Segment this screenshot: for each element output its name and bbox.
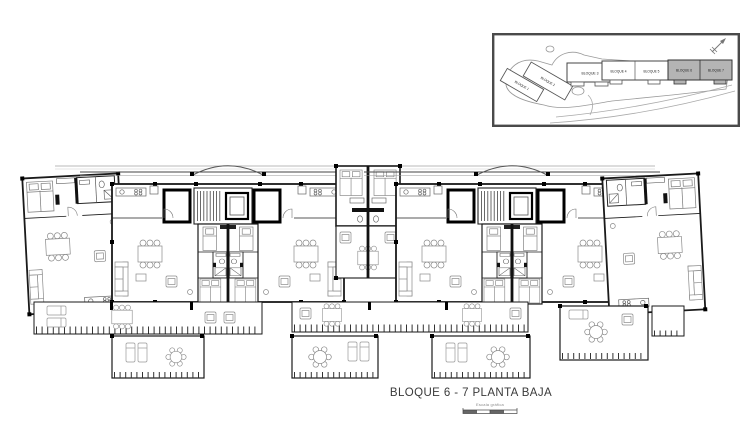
balcony-center bbox=[292, 302, 528, 332]
terrace-right bbox=[558, 304, 684, 360]
dining-table-icon bbox=[462, 304, 481, 326]
armchair-icon bbox=[224, 312, 235, 323]
site-plan-inset: BLOQUE 1 BLOQUE 2 BLOQUE 3 BLOQUE 4 BLOQ… bbox=[492, 33, 740, 127]
end-apartment-right bbox=[600, 171, 707, 316]
drawing-title: BLOQUE 6 - 7 PLANTA BAJA bbox=[286, 387, 656, 399]
armchair-icon bbox=[510, 308, 521, 319]
graphic-scale-bar bbox=[462, 407, 518, 416]
dining-table-icon bbox=[322, 304, 341, 326]
scale-bar: Escala gráfica bbox=[440, 402, 540, 416]
terrace-center-right bbox=[430, 334, 530, 378]
site-block-label: BLOQUE 7 bbox=[708, 69, 724, 73]
lounger-icon bbox=[458, 343, 467, 362]
site-block-label: BLOQUE 5 bbox=[644, 70, 660, 74]
lounger-icon bbox=[348, 342, 357, 361]
lounger-icon bbox=[47, 306, 66, 315]
terrace-center-left bbox=[290, 334, 378, 378]
lounger-icon bbox=[360, 342, 369, 361]
site-block-label: BLOQUE 4 bbox=[611, 70, 627, 74]
armchair-icon bbox=[622, 314, 633, 325]
armchair-icon bbox=[300, 308, 311, 319]
lounger-icon bbox=[569, 310, 588, 319]
lounger-icon bbox=[47, 318, 66, 327]
balcony-left bbox=[34, 302, 262, 334]
terrace-left bbox=[110, 334, 204, 378]
lounger-icon bbox=[446, 343, 455, 362]
armchair-icon bbox=[205, 312, 216, 323]
site-block-label: BLOQUE 3 bbox=[582, 72, 599, 76]
scale-bar-label: Escala gráfica bbox=[440, 402, 540, 407]
block-6-floor-plan bbox=[80, 166, 376, 304]
site-block-label: BLOQUE 6 bbox=[676, 69, 692, 73]
lounger-icon bbox=[138, 343, 147, 362]
site-block-bloque-6-7-highlighted: BLOQUE 6 BLOQUE 7 bbox=[668, 60, 732, 84]
mid-apartment-pair bbox=[334, 164, 402, 280]
lounger-icon bbox=[126, 343, 135, 362]
dining-table-icon bbox=[112, 305, 132, 329]
